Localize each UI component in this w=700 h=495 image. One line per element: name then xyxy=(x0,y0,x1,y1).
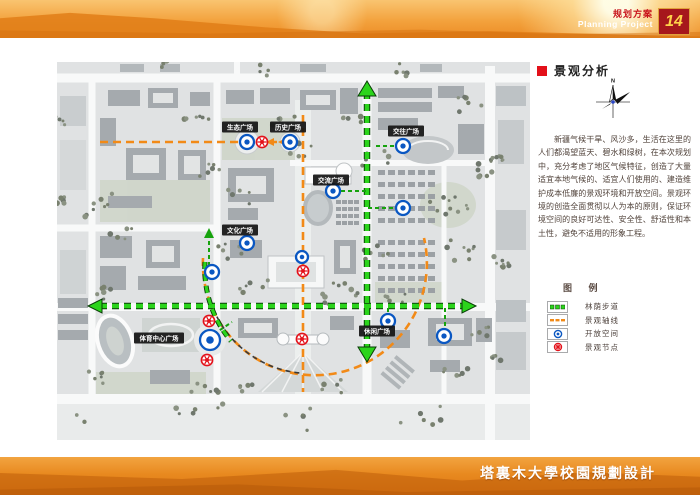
legend-item-landscape-axis: 景观轴线 xyxy=(547,314,677,328)
red-square-bullet-icon xyxy=(537,66,547,76)
legend: 林荫步道 景观轴线 开放空间 景观节点 xyxy=(547,300,677,354)
open-space-node xyxy=(396,139,410,153)
header-title-en: Planning Project xyxy=(520,19,653,29)
landscape-node xyxy=(296,333,307,344)
description-paragraph: 新疆气候干旱、风沙多，生活在这里的人们都渴望蓝天、碧水和绿树，在本次规划中，充分… xyxy=(538,133,691,240)
svg-text:文化广场: 文化广场 xyxy=(226,225,254,234)
svg-text:体育中心广场: 体育中心广场 xyxy=(140,333,180,342)
plaza-label: 交流广场 xyxy=(313,175,349,186)
plaza-label: 交往广场 xyxy=(388,126,424,137)
compass-north-label: N xyxy=(611,79,615,85)
open-space-node xyxy=(296,251,308,263)
page-number-badge: 14 xyxy=(658,8,690,35)
open-space-node xyxy=(205,265,219,279)
legend-item-landscape-node: 景观节点 xyxy=(547,341,677,355)
campus-map: 生态广场历史广场交往广场交流广场文化广场体育中心广场休闲广场 xyxy=(57,62,530,440)
red-node-swatch-icon xyxy=(547,341,568,353)
open-space-node xyxy=(326,184,340,198)
open-space-node xyxy=(396,201,410,215)
open-space-node xyxy=(240,135,254,149)
plaza-label: 文化广场 xyxy=(222,225,258,236)
landscape-node xyxy=(256,136,267,147)
open-space-node xyxy=(437,329,451,343)
orange-dash-swatch-icon xyxy=(547,314,568,326)
landscape-node xyxy=(201,354,212,365)
landscape-node xyxy=(203,315,214,326)
svg-text:交流广场: 交流广场 xyxy=(318,175,345,184)
poster-page: { "header": { "title_zh": "规划方案", "title… xyxy=(0,0,700,495)
open-space-node xyxy=(200,330,220,350)
legend-title: 图 例 xyxy=(563,281,605,294)
green-dash-swatch-icon xyxy=(547,301,568,313)
legend-item-tree-walk: 林荫步道 xyxy=(547,300,677,314)
landscape-node xyxy=(297,265,308,276)
svg-text:休闲广场: 休闲广场 xyxy=(363,326,391,335)
footer-title: 塔裏木大學校園規劃設計 xyxy=(478,463,658,483)
plaza-label: 休闲广场 xyxy=(359,326,395,337)
plaza-label: 生态广场 xyxy=(222,122,258,133)
open-space-node xyxy=(283,135,297,149)
open-space-node xyxy=(240,236,254,250)
svg-text:生态广场: 生态广场 xyxy=(227,122,254,131)
legend-item-open-space: 开放空间 xyxy=(547,327,677,341)
north-compass-icon: N xyxy=(590,74,636,122)
svg-text:交往广场: 交往广场 xyxy=(393,126,420,135)
blue-node-swatch-icon xyxy=(547,328,568,340)
svg-text:历史广场: 历史广场 xyxy=(275,122,302,131)
plaza-label: 历史广场 xyxy=(270,122,306,133)
plaza-label: 体育中心广场 xyxy=(134,333,184,344)
